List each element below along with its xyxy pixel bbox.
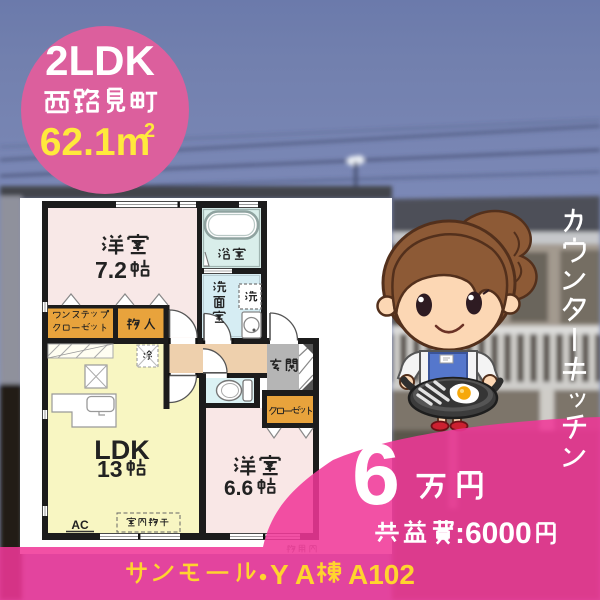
svg-text::6000: :6000 <box>455 517 532 550</box>
svg-text:Y A: Y A <box>270 559 315 590</box>
svg-text:6.6: 6.6 <box>224 477 253 500</box>
svg-text:13: 13 <box>97 456 123 482</box>
svg-text:7.2: 7.2 <box>95 257 127 283</box>
svg-text:62.1m: 62.1m <box>40 121 151 164</box>
svg-text:AC: AC <box>71 518 89 532</box>
svg-text:A102: A102 <box>348 559 415 590</box>
svg-text:2: 2 <box>144 120 155 142</box>
svg-text:6: 6 <box>352 427 400 523</box>
svg-text:2LDK: 2LDK <box>45 37 155 84</box>
